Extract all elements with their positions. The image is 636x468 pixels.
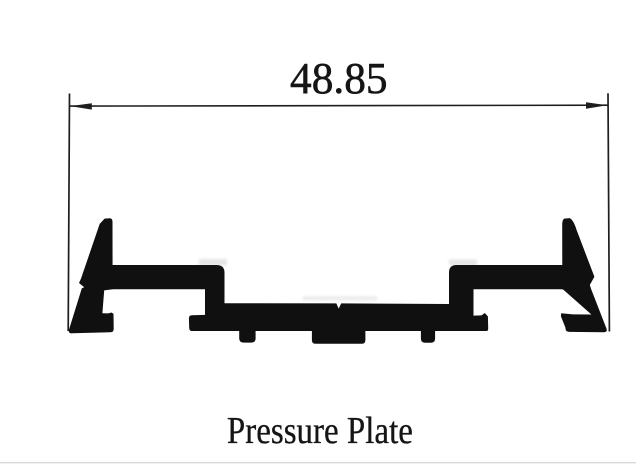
svg-text:Pressure Plate: Pressure Plate	[227, 410, 413, 452]
svg-text:48.85: 48.85	[290, 54, 388, 103]
